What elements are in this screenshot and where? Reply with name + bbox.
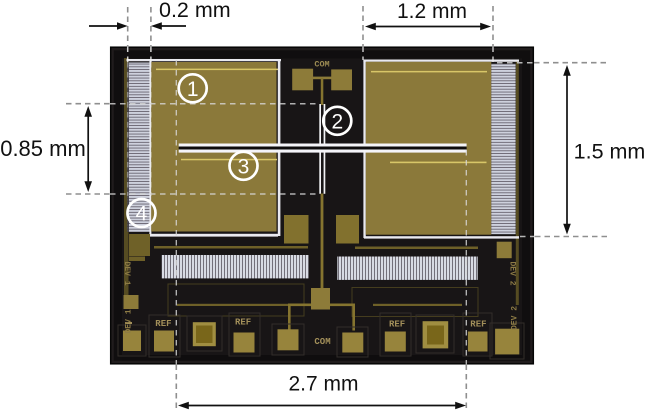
svg-text:REF: REF [235,318,251,328]
svg-text:COM: COM [314,60,329,70]
svg-text:REF: REF [389,320,405,330]
svg-text:2.7 mm: 2.7 mm [288,373,358,396]
svg-text:COM: COM [314,337,330,347]
svg-text:1.2 mm: 1.2 mm [397,0,467,23]
svg-text:3: 3 [238,155,250,178]
svg-text:DEV 1: DEV 1 [122,262,131,286]
svg-text:DEV 1: DEV 1 [125,309,134,333]
svg-text:DEV 2: DEV 2 [511,306,520,330]
svg-text:0.2 mm: 0.2 mm [159,0,231,22]
svg-text:1.5 mm: 1.5 mm [574,140,645,164]
svg-text:2: 2 [331,110,343,133]
svg-text:REF: REF [155,319,171,329]
svg-text:REF: REF [470,320,486,330]
svg-text:4: 4 [136,203,148,226]
svg-text:DEV 2: DEV 2 [508,262,517,286]
svg-text:0.85 mm: 0.85 mm [0,136,86,161]
svg-text:1: 1 [187,78,199,101]
